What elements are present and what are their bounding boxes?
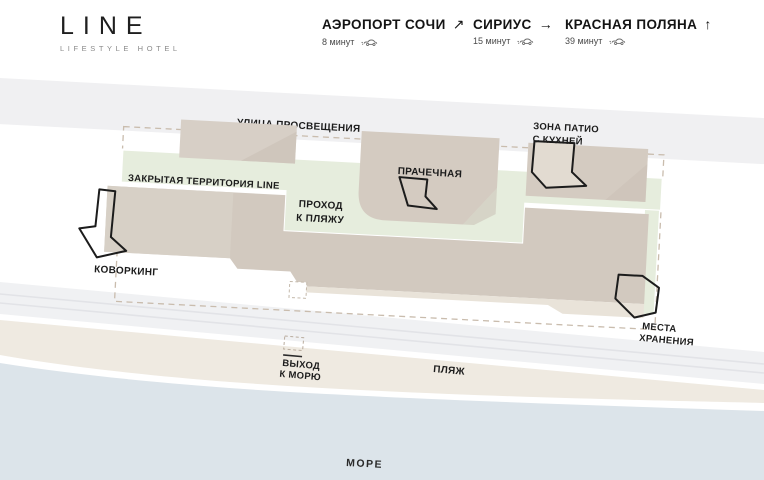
arrow-up-icon: ↑ [704,16,711,32]
destination-name: КРАСНАЯ ПОЛЯНА [565,17,697,32]
car-icon [361,38,378,47]
arrow-upright-icon: ↗ [453,16,465,33]
destination-item-sirius[interactable]: СИРИУС → 15 минут [473,16,553,46]
hotel-logo[interactable]: LINE LIFESTYLE HOTEL [60,14,181,53]
destination-time: 8 минут [322,37,354,47]
logo-subtitle: LIFESTYLE HOTEL [60,44,181,53]
destination-name: СИРИУС [473,17,532,32]
car-icon [609,37,626,46]
page: УЛИЦА ПРОСВЕЩЕНИЯ ЗАКРЫТАЯ ТЕРРИТОРИЯ LI… [0,0,764,480]
sea-label: МОРЕ [346,457,383,471]
header: LINE LIFESTYLE HOTEL АЭРОПОРТ СОЧИ ↗ 8 м… [0,0,764,60]
destination-time: 15 минут [473,36,510,46]
car-icon [517,37,534,46]
passage-dashed-square [289,281,307,298]
destination-name: АЭРОПОРТ СОЧИ [322,17,446,32]
destination-time: 39 минут [565,36,602,46]
destination-item-airport[interactable]: АЭРОПОРТ СОЧИ ↗ 8 минут [322,16,465,47]
destination-item-krasnaya-polyana[interactable]: КРАСНАЯ ПОЛЯНА ↑ 39 минут [565,16,712,46]
beach-passage-label-1: ПРОХОД [299,199,344,212]
site-map: УЛИЦА ПРОСВЕЩЕНИЯ ЗАКРЫТАЯ ТЕРРИТОРИЯ LI… [0,0,764,480]
logo-title: LINE [60,14,181,39]
arrow-right-icon: → [539,16,553,32]
